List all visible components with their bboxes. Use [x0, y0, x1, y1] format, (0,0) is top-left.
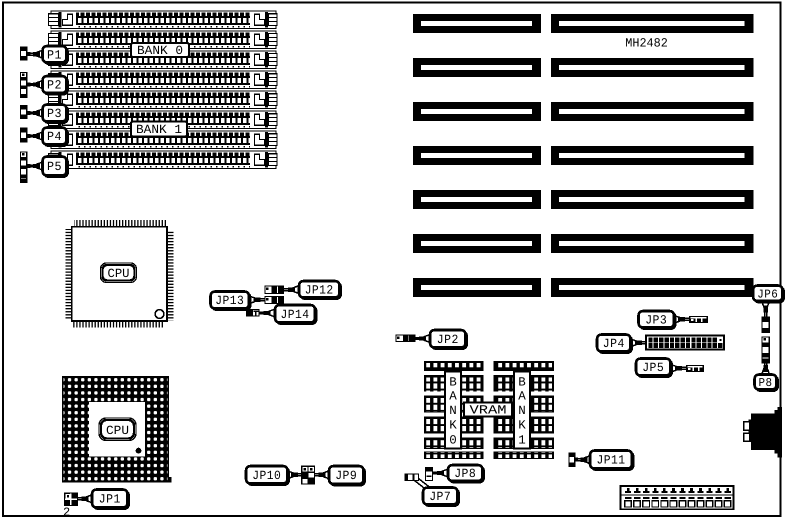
svg-text:P8: P8 [759, 376, 773, 390]
svg-text:JP14: JP14 [281, 308, 310, 322]
svg-text:JP9: JP9 [335, 469, 357, 483]
svg-text:P4: P4 [47, 130, 62, 144]
svg-text:CPU: CPU [106, 424, 129, 438]
svg-text:1: 1 [518, 434, 526, 448]
svg-text:2: 2 [63, 506, 70, 520]
svg-text:N: N [449, 404, 457, 418]
svg-text:VRAM: VRAM [470, 404, 507, 418]
svg-text:JP13: JP13 [215, 294, 244, 308]
svg-text:CPU: CPU [108, 267, 130, 281]
svg-text:JP4: JP4 [603, 337, 625, 351]
svg-text:A: A [449, 390, 457, 404]
svg-text:B: B [518, 376, 526, 390]
svg-text:0: 0 [449, 434, 457, 448]
svg-text:P2: P2 [47, 79, 62, 93]
svg-text:JP7: JP7 [429, 490, 451, 504]
svg-text:JP8: JP8 [454, 467, 476, 481]
svg-text:A: A [518, 390, 526, 404]
svg-text:MH2482: MH2482 [625, 37, 668, 51]
svg-text:BANK 1: BANK 1 [136, 123, 182, 137]
svg-text:P5: P5 [47, 160, 62, 174]
svg-text:K: K [449, 419, 457, 433]
svg-text:JP5: JP5 [642, 361, 664, 375]
svg-text:JP1: JP1 [99, 493, 121, 507]
svg-text:N: N [518, 404, 526, 418]
svg-text:JP10: JP10 [252, 469, 281, 483]
svg-text:JP3: JP3 [645, 313, 667, 327]
svg-text:JP6: JP6 [757, 287, 778, 301]
svg-text:JP12: JP12 [305, 283, 334, 297]
svg-text:P1: P1 [47, 48, 62, 62]
svg-text:P3: P3 [47, 107, 62, 121]
svg-text:K: K [518, 419, 526, 433]
svg-text:BANK 0: BANK 0 [137, 44, 183, 58]
svg-text:JP11: JP11 [597, 454, 626, 468]
svg-text:B: B [449, 376, 457, 390]
svg-text:JP2: JP2 [437, 333, 459, 347]
